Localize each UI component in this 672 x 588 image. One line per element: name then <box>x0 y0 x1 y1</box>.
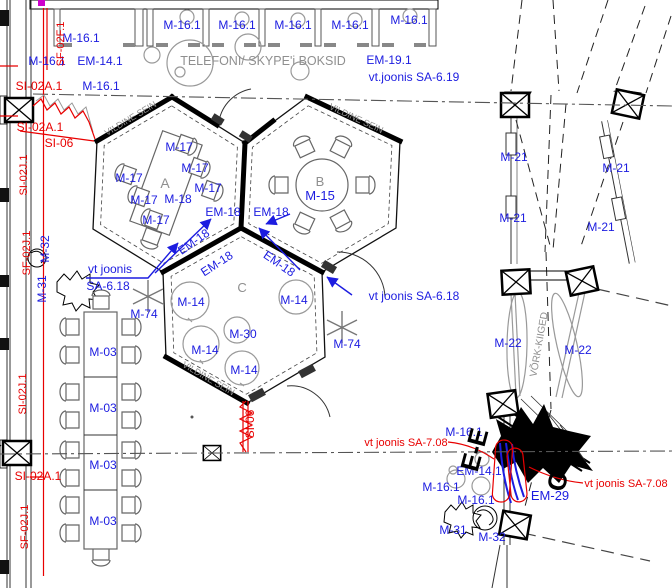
room-letter-c: C <box>237 280 246 295</box>
label-m74-right: M-74 <box>333 337 361 351</box>
label-em18-1: EM-18 <box>205 205 241 219</box>
label-m22-right: M-22 <box>564 343 592 357</box>
label-m74-left: M-74 <box>130 307 158 321</box>
label-m22-left: M-22 <box>494 336 522 350</box>
label-m21-3: M-21 <box>499 211 527 225</box>
label-vtjoonis-right: vt joonis SA-6.18 <box>369 289 460 303</box>
label-m17-6: M-17 <box>142 213 170 227</box>
booth-label-1: M-16.1 <box>163 18 201 32</box>
label-m30: M-30 <box>229 327 257 341</box>
label-em14-top: EM-14.1 <box>77 54 123 68</box>
label-m16-bottom-3: M-16.1 <box>457 493 495 507</box>
label-m17-5: M-17 <box>130 193 158 207</box>
booth-label-2: M-16.1 <box>218 18 256 32</box>
label-m03-2: M-03 <box>89 401 117 415</box>
label-si02j-2: SI-02J.1 <box>17 374 29 415</box>
label-sf02j-2: SF-02J.1 <box>19 505 31 550</box>
label-m21-2: M-21 <box>602 161 630 175</box>
label-sa708-left: vt joonis SA-7.08 <box>364 437 447 449</box>
label-m17-3: M-17 <box>194 181 222 195</box>
revision-mark <box>38 0 45 6</box>
label-m16-c: M-16.1 <box>82 79 120 93</box>
label-si06-left: SI-06 <box>45 136 74 150</box>
booth-label-5: M-16.1 <box>390 13 428 27</box>
floor-plan-drawing: M-16.1M-16.1M-16.1M-16.1M-16.1M-16.1M-16… <box>0 0 672 588</box>
label-m03-1: M-03 <box>89 345 117 359</box>
label-sa619: vt.joonis SA-6.19 <box>369 70 460 84</box>
label-m21-4: M-21 <box>587 220 615 234</box>
label-si02a-bottom: SI-02A.1 <box>15 469 62 483</box>
label-em19: EM-19.1 <box>366 53 412 67</box>
label-si02a-top: SI-02A.1 <box>16 79 63 93</box>
label-m17-4: M-17 <box>115 171 143 185</box>
label-m17-2: M-17 <box>181 161 209 175</box>
label-si02j-1: SI-02J.1 <box>18 155 30 196</box>
booth-door-stubs <box>60 43 426 47</box>
label-sf02j-1: SF-02J.1 <box>21 231 33 276</box>
label-vtjoonis-left-2: SA-6.18 <box>86 279 130 293</box>
label-m16-a: M-16.1 <box>62 31 100 45</box>
room-letter-b: B <box>316 174 325 189</box>
label-m17-1: M-17 <box>165 140 193 154</box>
label-m31-bottom: M-31 <box>439 523 467 537</box>
label-sa708-right: vt joonis SA-7.08 <box>584 478 667 490</box>
label-m32-bottom: M-32 <box>478 530 506 544</box>
label-m16-bottom-2: M-16.1 <box>422 480 460 494</box>
label-m21-1: M-21 <box>500 150 528 164</box>
label-m14-2: M-14 <box>280 293 308 307</box>
label-si02a-mid: SI-02A.1 <box>17 120 64 134</box>
label-m15: M-15 <box>305 188 335 203</box>
label-m03-4: M-03 <box>89 514 117 528</box>
top-wall <box>30 0 438 9</box>
label-m14-4: M-14 <box>230 363 258 377</box>
floor-plan-canvas: M-16.1M-16.1M-16.1M-16.1M-16.1M-16.1M-16… <box>0 0 672 588</box>
swing-beam <box>528 271 570 280</box>
label-si06-bottom: SI-06 <box>243 409 257 438</box>
label-m32-left: M-32 <box>38 235 52 263</box>
room-title-booths: TELEFONI/ SKYPE'i BOKSID <box>180 54 346 68</box>
label-m18: M-18 <box>164 192 192 206</box>
room-letter-a: A <box>160 175 170 191</box>
booth-label-4: M-16.1 <box>331 18 369 32</box>
label-m14-1: M-14 <box>177 295 205 309</box>
label-vork-kiiged: VÕRK-KIIGED <box>526 311 550 378</box>
label-m03-3: M-03 <box>89 458 117 472</box>
label-m31-left: M-31 <box>35 275 49 303</box>
booth-label-3: M-16.1 <box>274 18 312 32</box>
label-m14-3: M-14 <box>191 343 219 357</box>
label-sf02f: SF-02F.1 <box>55 22 67 67</box>
label-em18-2: EM-18 <box>253 205 289 219</box>
label-vtjoonis-left-1: vt joonis <box>88 262 132 276</box>
